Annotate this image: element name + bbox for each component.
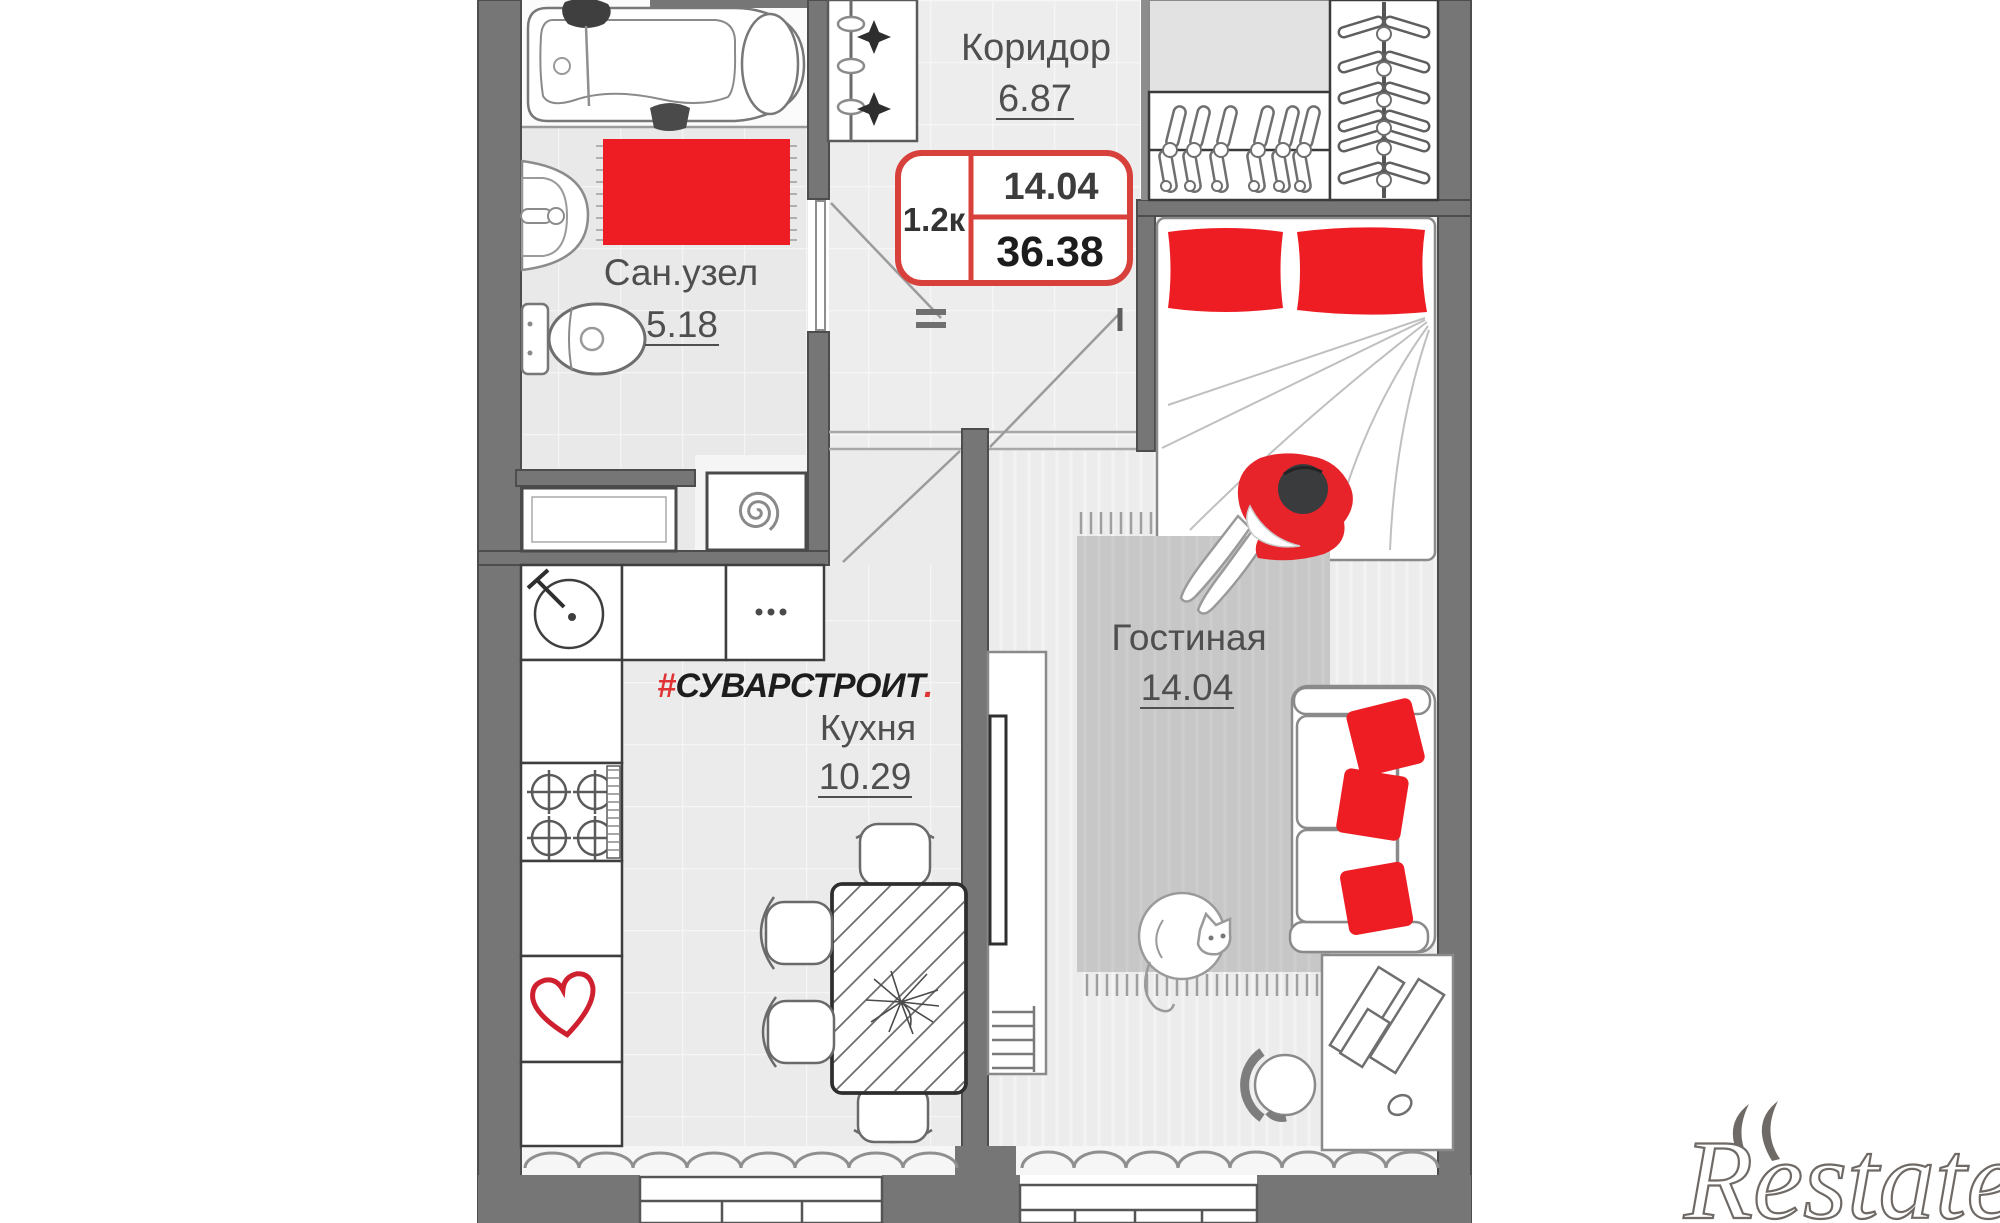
svg-text:6.87: 6.87 <box>998 78 1072 120</box>
svg-text:10.29: 10.29 <box>819 756 912 797</box>
svg-text:Гостиная: Гостиная <box>1111 617 1266 658</box>
svg-text:36.38: 36.38 <box>996 228 1104 276</box>
svg-text:#СУВАРСТРОИТ.: #СУВАРСТРОИТ. <box>657 667 933 705</box>
svg-text:Кухня: Кухня <box>820 707 916 748</box>
svg-text:Сан.узел: Сан.узел <box>604 252 758 293</box>
svg-text:14.04: 14.04 <box>1003 166 1098 208</box>
svg-text:Коридор: Коридор <box>961 27 1111 69</box>
svg-text:14.04: 14.04 <box>1141 667 1234 708</box>
svg-text:5.18: 5.18 <box>646 304 718 345</box>
svg-text:1.2к: 1.2к <box>903 201 966 238</box>
svg-text:Restate: Restate <box>1683 1118 2000 1223</box>
